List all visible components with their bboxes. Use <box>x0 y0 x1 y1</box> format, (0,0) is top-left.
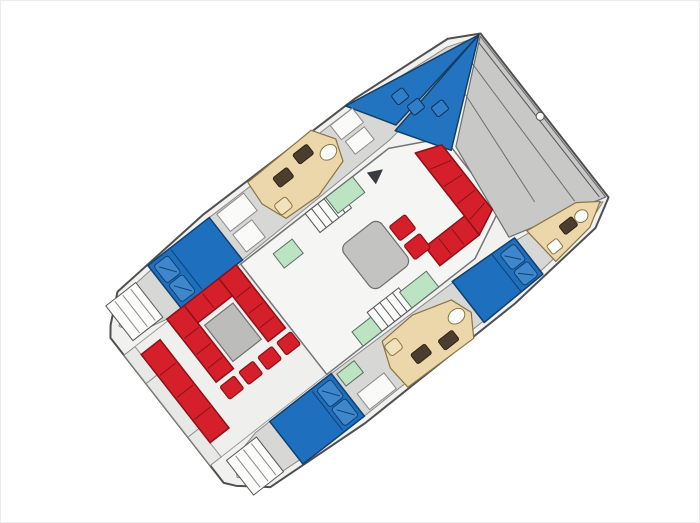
floor-plan-image <box>0 0 700 523</box>
boat-group <box>86 11 626 514</box>
catamaran-floor-plan-canvas <box>1 1 700 523</box>
